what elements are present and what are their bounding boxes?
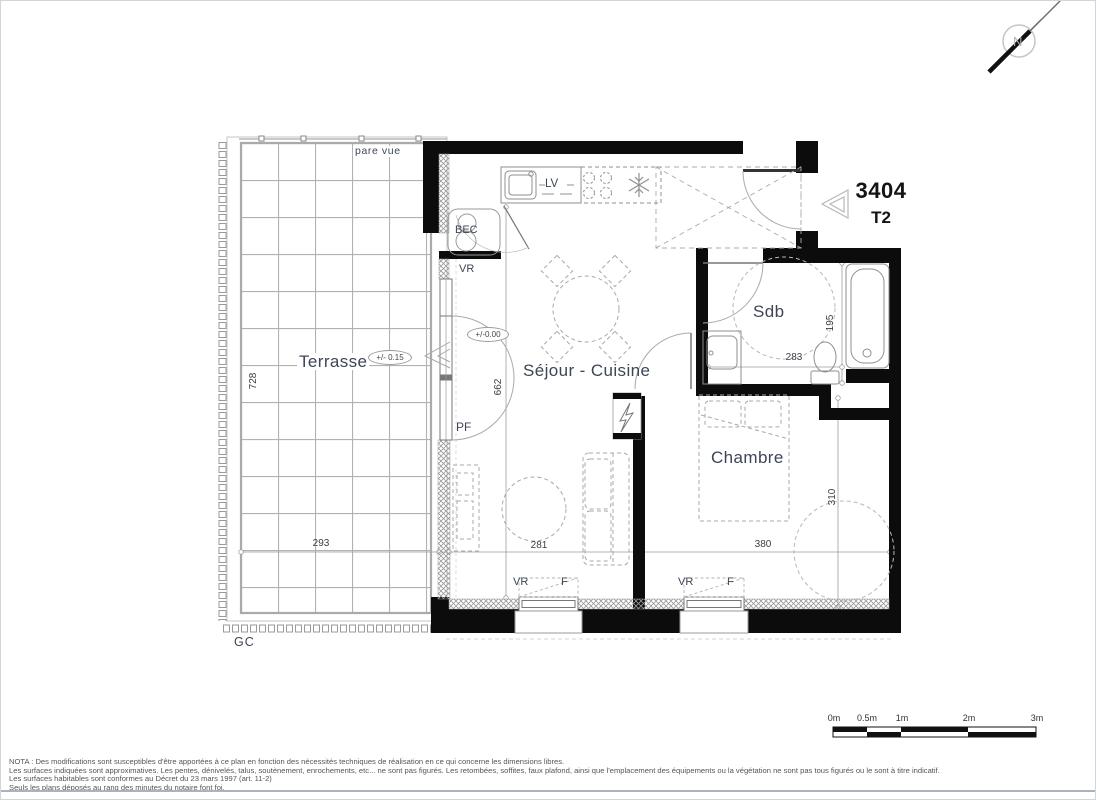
room-label-chambre: Chambre <box>711 449 784 466</box>
pare-vue-label: pare vue <box>353 146 403 157</box>
dim-sdb-height: 195 <box>826 303 836 343</box>
nota-text: NOTA : Des modifications sont susceptibl… <box>9 758 940 792</box>
railing-bottom <box>222 623 432 634</box>
dim-sdb-width: 283 <box>774 353 814 363</box>
floor-plan-page: Terrasse +/- 0.15 Séjour - Cuisine +/-0.… <box>0 0 1096 800</box>
dim-chambre-height: 310 <box>828 477 838 517</box>
unit-id: 3404 T2 <box>843 178 919 228</box>
electrical-panel <box>613 393 641 439</box>
window-sill <box>515 611 582 633</box>
gc-label: GC <box>234 636 255 649</box>
dim-sejour-height: 662 <box>494 367 504 407</box>
kitchen-fixtures <box>501 167 661 203</box>
dim-sejour-width: 281 <box>519 541 559 551</box>
floor-plan-drawing <box>1 1 1096 800</box>
scale-label-3m: 3m <box>1022 713 1052 723</box>
lv-label: LV <box>545 179 558 191</box>
dim-terrasse-width: 293 <box>301 539 341 549</box>
pf-label: PF <box>456 421 471 433</box>
railing-left <box>217 141 228 621</box>
window-indicators <box>519 578 744 597</box>
f-label-sejour: F <box>561 577 568 588</box>
bathtub <box>846 264 889 368</box>
level-marker-terrasse: +/- 0.15 <box>368 350 412 365</box>
scale-label-2m: 2m <box>954 713 984 723</box>
scale-bar <box>833 727 1036 737</box>
vr-label-chambre: VR <box>678 577 693 588</box>
scale-label-0m: 0m <box>819 713 849 723</box>
dim-chambre-width: 380 <box>743 540 783 550</box>
bec-label: BEC <box>455 225 478 236</box>
fridge-snowflake-icon <box>629 173 649 197</box>
room-label-sdb: Sdb <box>753 303 784 320</box>
north-compass-icon <box>989 1 1063 72</box>
bottom-rule <box>1 790 1096 792</box>
scale-label-05m: 0.5m <box>852 713 882 723</box>
entry-closet <box>656 167 801 248</box>
level-marker-sejour: +/-0.00 <box>467 327 509 342</box>
dining-table <box>541 255 630 362</box>
north-letter: N <box>1013 34 1022 49</box>
turning-circle-chambre <box>794 501 894 601</box>
window-sill <box>680 611 748 633</box>
f-label-chambre: F <box>727 577 734 588</box>
dim-terrasse-height: 728 <box>249 361 259 401</box>
room-label-sejour: Séjour - Cuisine <box>523 362 650 379</box>
scale-label-1m: 1m <box>887 713 917 723</box>
vanity <box>703 331 741 384</box>
room-label-terrasse: Terrasse <box>297 353 369 370</box>
stove-burners <box>584 173 612 199</box>
unit-number: 3404 <box>843 178 919 204</box>
vr-label-sejour: VR <box>513 577 528 588</box>
toilet <box>811 371 839 384</box>
bathroom-fixtures <box>703 264 889 384</box>
vr-label-kitchen: VR <box>459 264 474 275</box>
unit-type: T2 <box>843 208 919 228</box>
